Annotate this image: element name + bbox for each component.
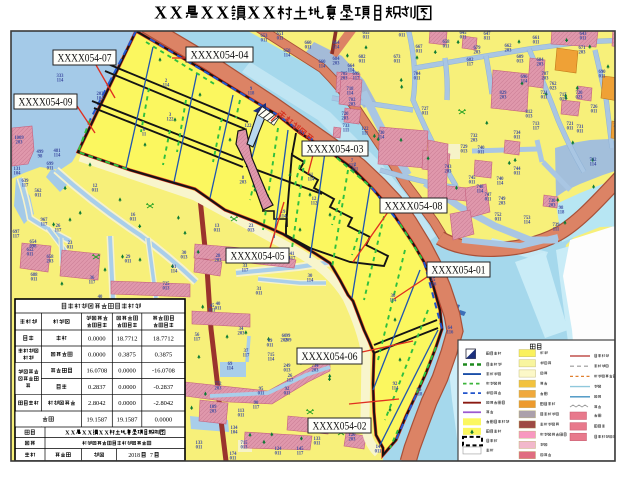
svg-text:114: 114	[392, 387, 399, 392]
svg-text:18.7712: 18.7712	[153, 335, 174, 342]
svg-text:011: 011	[375, 450, 382, 455]
svg-text:203: 203	[214, 387, 222, 392]
svg-text:114: 114	[268, 358, 275, 363]
svg-text:118: 118	[248, 92, 255, 97]
svg-text:104: 104	[13, 172, 21, 177]
svg-text:203: 203	[499, 96, 507, 101]
svg-text:011: 011	[443, 45, 450, 50]
svg-text:011: 011	[577, 130, 584, 135]
svg-text:011: 011	[305, 46, 312, 51]
svg-text:117: 117	[353, 77, 360, 82]
svg-text:203: 203	[239, 181, 247, 186]
svg-text:104: 104	[230, 431, 238, 436]
svg-text:098: 098	[29, 245, 37, 250]
svg-text:114: 114	[57, 79, 64, 84]
svg-text:XXXX054-07: XXXX054-07	[58, 53, 112, 65]
svg-text:011: 011	[359, 60, 366, 65]
svg-text:XXXX054-01: XXXX054-01	[432, 265, 486, 277]
svg-text:011: 011	[92, 189, 99, 194]
svg-text:114: 114	[497, 182, 504, 187]
svg-text:XXXX054-04: XXXX054-04	[191, 50, 249, 62]
svg-text:XXXX054-03: XXXX054-03	[307, 144, 364, 156]
svg-text:114: 114	[524, 221, 531, 226]
svg-text:011: 011	[256, 292, 263, 297]
svg-text:013: 013	[525, 115, 533, 120]
svg-text:X: X	[88, 429, 93, 436]
svg-text:023: 023	[575, 96, 583, 101]
svg-text:0.0000: 0.0000	[88, 352, 106, 359]
svg-text:117: 117	[533, 127, 540, 132]
svg-text:114: 114	[378, 136, 385, 141]
svg-text:203: 203	[340, 77, 348, 82]
svg-text:011: 011	[125, 260, 132, 265]
svg-text:104: 104	[96, 97, 104, 102]
svg-text:203: 203	[15, 141, 23, 146]
svg-text:114: 114	[390, 299, 397, 304]
svg-text:011: 011	[416, 50, 423, 55]
svg-text:117: 117	[55, 229, 62, 234]
svg-text:011: 011	[422, 112, 429, 117]
svg-text:011: 011	[196, 446, 203, 451]
svg-text:X: X	[263, 3, 276, 23]
svg-text:XXXX054-08: XXXX054-08	[385, 201, 443, 213]
svg-text:117: 117	[41, 223, 48, 228]
svg-text:011: 011	[363, 36, 370, 41]
svg-text:114: 114	[333, 46, 340, 51]
svg-text:011: 011	[414, 77, 421, 82]
svg-text:111: 111	[362, 132, 369, 137]
svg-text:18.7712: 18.7712	[117, 335, 138, 342]
svg-text:114: 114	[163, 84, 170, 89]
svg-text:011: 011	[599, 75, 606, 80]
svg-text:111: 111	[352, 168, 359, 173]
svg-text:16.0708: 16.0708	[86, 368, 107, 375]
svg-text:0.0000: 0.0000	[88, 335, 106, 342]
svg-text:203: 203	[444, 170, 452, 175]
svg-text:XXXX054-02: XXXX054-02	[313, 421, 367, 433]
svg-text:011: 011	[514, 136, 521, 141]
svg-text:X: X	[170, 3, 183, 23]
svg-text:114: 114	[280, 215, 287, 220]
svg-text:114: 114	[590, 163, 597, 168]
svg-text:114: 114	[227, 367, 234, 372]
svg-text:203: 203	[237, 332, 245, 337]
svg-text:011: 011	[267, 344, 274, 349]
svg-text:X: X	[65, 429, 70, 436]
svg-text:203: 203	[541, 77, 549, 82]
svg-text:114: 114	[54, 154, 61, 159]
svg-text:011: 011	[214, 229, 221, 234]
svg-text:013: 013	[559, 98, 567, 103]
svg-text:011: 011	[580, 37, 587, 42]
svg-text:0.3875: 0.3875	[155, 352, 173, 359]
svg-text:011: 011	[238, 414, 245, 419]
svg-text:011: 011	[27, 253, 34, 258]
svg-text:011: 011	[215, 307, 222, 312]
svg-text:013: 013	[180, 256, 188, 261]
svg-text:114: 114	[307, 279, 314, 284]
svg-text:X: X	[247, 3, 260, 23]
svg-text:117: 117	[467, 63, 474, 68]
svg-text:203: 203	[341, 117, 349, 122]
svg-text:0.0000: 0.0000	[118, 384, 136, 391]
svg-text:117: 117	[297, 452, 304, 457]
svg-text:011: 011	[399, 34, 406, 39]
svg-text:112: 112	[311, 202, 318, 207]
svg-text:0.2837: 0.2837	[88, 384, 106, 391]
svg-text:X: X	[201, 3, 214, 23]
svg-text:0.3875: 0.3875	[118, 352, 136, 359]
svg-text:117: 117	[22, 184, 29, 189]
svg-text:122: 122	[244, 124, 252, 129]
svg-text:117: 117	[253, 406, 260, 411]
svg-text:203: 203	[470, 139, 478, 144]
svg-text:013: 013	[240, 446, 248, 451]
svg-text:0.0000: 0.0000	[155, 416, 173, 423]
svg-text:203: 203	[214, 259, 222, 264]
svg-text:X: X	[99, 429, 104, 436]
svg-text:203: 203	[311, 369, 319, 374]
svg-text:118: 118	[558, 211, 565, 216]
svg-text:013: 013	[460, 150, 468, 155]
svg-text:111: 111	[553, 228, 560, 233]
svg-text:203: 203	[473, 51, 481, 56]
svg-text:117: 117	[287, 379, 294, 384]
svg-text:011: 011	[478, 151, 485, 156]
svg-text:0.0000: 0.0000	[118, 400, 136, 407]
svg-text:122: 122	[166, 118, 174, 123]
svg-text:X: X	[104, 429, 109, 436]
svg-text:114: 114	[171, 270, 178, 275]
svg-text:XXXX054-09: XXXX054-09	[19, 97, 73, 109]
svg-text:11: 11	[142, 133, 147, 138]
svg-text:X: X	[82, 429, 87, 436]
svg-text:203: 203	[548, 204, 556, 209]
svg-text:011: 011	[514, 172, 521, 177]
svg-text:114: 114	[308, 178, 315, 183]
svg-text:203: 203	[348, 103, 356, 108]
svg-text:7: 7	[150, 453, 153, 459]
svg-text:116: 116	[430, 283, 437, 288]
svg-text:2018: 2018	[128, 453, 140, 459]
svg-text:203: 203	[578, 51, 586, 56]
svg-text:19.1587: 19.1587	[86, 416, 108, 423]
svg-text:XXXX054-06: XXXX054-06	[302, 351, 358, 363]
svg-text:011: 011	[394, 60, 401, 65]
svg-text:203: 203	[504, 49, 512, 54]
svg-text:114: 114	[477, 190, 484, 195]
svg-text:-2.8042: -2.8042	[154, 400, 174, 407]
svg-text:011: 011	[277, 37, 284, 42]
svg-text:011: 011	[284, 392, 291, 397]
svg-text:116: 116	[447, 331, 454, 336]
svg-text:203: 203	[46, 260, 54, 265]
svg-text:203: 203	[348, 438, 356, 443]
svg-text:203: 203	[209, 410, 217, 415]
svg-text:111: 111	[343, 129, 350, 134]
svg-text:117: 117	[89, 281, 96, 286]
svg-text:811: 811	[484, 37, 491, 42]
svg-text:-0.2837: -0.2837	[154, 384, 175, 391]
svg-text:203: 203	[332, 62, 340, 67]
svg-text:011: 011	[275, 452, 282, 457]
svg-text:011: 011	[541, 96, 548, 101]
svg-text:114: 114	[319, 65, 326, 70]
svg-text:013: 013	[162, 287, 170, 292]
svg-text:-16.0708: -16.0708	[152, 368, 175, 375]
svg-text:023: 023	[549, 87, 557, 92]
svg-text:98: 98	[38, 155, 43, 160]
svg-text:117: 117	[243, 354, 250, 359]
svg-text:011: 011	[258, 392, 265, 397]
svg-text:19.1587: 19.1587	[117, 416, 139, 423]
svg-text:0.0000: 0.0000	[118, 368, 136, 375]
svg-text:011: 011	[31, 278, 38, 283]
svg-text:114: 114	[521, 80, 528, 85]
svg-text:011: 011	[460, 36, 467, 41]
svg-text:X: X	[216, 3, 229, 23]
svg-text:011: 011	[533, 41, 540, 46]
svg-text:X: X	[71, 429, 76, 436]
svg-text:117: 117	[242, 269, 249, 274]
svg-text:011: 011	[591, 110, 598, 115]
svg-text:011: 011	[261, 39, 268, 44]
svg-text:013: 013	[283, 369, 291, 374]
svg-text:117: 117	[289, 257, 296, 262]
svg-text:117: 117	[13, 235, 20, 240]
svg-text:011: 011	[35, 194, 42, 199]
svg-text:XXXX054-05: XXXX054-05	[231, 251, 285, 263]
svg-text:203: 203	[536, 63, 544, 68]
svg-text:011: 011	[495, 218, 502, 223]
svg-text:209: 209	[284, 339, 292, 344]
svg-text:011: 011	[469, 181, 476, 186]
svg-text:114: 114	[284, 54, 291, 59]
svg-text:011: 011	[485, 198, 492, 203]
svg-text:011: 011	[314, 442, 321, 447]
svg-text:011: 011	[67, 246, 74, 251]
svg-text:011: 011	[567, 127, 574, 132]
svg-text:011: 011	[130, 218, 137, 223]
svg-text:013: 013	[247, 229, 255, 234]
svg-text:011: 011	[47, 167, 54, 172]
svg-text:114: 114	[347, 92, 354, 97]
svg-text:118: 118	[416, 393, 423, 398]
svg-text:117: 117	[194, 338, 201, 343]
svg-text:2.8042: 2.8042	[88, 400, 106, 407]
svg-text:203: 203	[498, 202, 506, 207]
svg-text:X: X	[154, 3, 167, 23]
svg-text:013: 013	[516, 60, 524, 65]
